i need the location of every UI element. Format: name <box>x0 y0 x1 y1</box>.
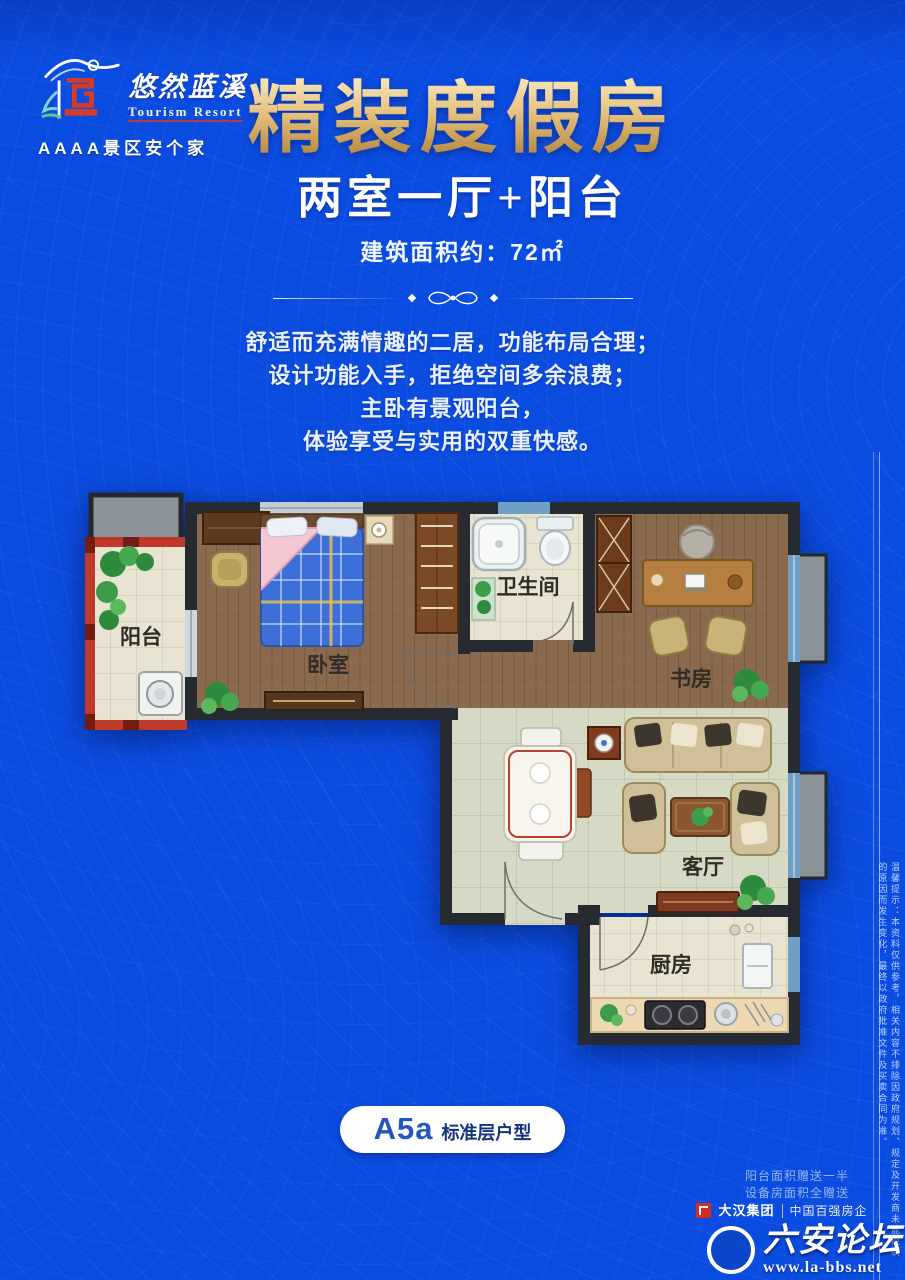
footer-note: 阳台面积赠送一半 <box>717 1168 877 1185</box>
room-label-bedroom: 卧室 <box>307 653 349 677</box>
desk <box>643 560 753 606</box>
description: 舒适而充满情趣的二居，功能布局合理； 设计功能入手，拒绝空间多余浪费； 主卧有景… <box>0 326 905 458</box>
page-title: 精装度假房 <box>150 78 775 160</box>
description-line: 舒适而充满情趣的二居，功能布局合理； <box>0 326 905 359</box>
bed <box>261 514 363 646</box>
room-label-kitchen: 厨房 <box>650 953 692 977</box>
armchair <box>211 552 248 587</box>
unit-badge: A5a 标准层户型 <box>340 1106 566 1153</box>
coffee-table <box>671 798 729 836</box>
ornament-divider <box>273 288 633 308</box>
unit-badge-label: 标准层户型 <box>441 1124 531 1142</box>
bath-shelf-plant <box>472 578 495 620</box>
poster: 悠然蓝溪 Tourism Resort AAAA景区安个家 精装度假房 两室一厅… <box>0 0 905 1280</box>
description-line: 体验享受与实用的双重快感。 <box>0 425 905 458</box>
toilet <box>537 517 573 565</box>
room-label-balcony: 阳台 <box>120 625 162 649</box>
room-label-study: 书房 <box>670 667 712 691</box>
wardrobe <box>416 513 458 633</box>
desk-chair <box>680 525 714 559</box>
tv-dresser-bedroom <box>265 692 363 710</box>
watermark-site-url: www.la-bbs.net <box>763 1260 903 1276</box>
headline-block: 精装度假房 两室一厅+阳台 建筑面积约：72㎡ <box>150 78 775 264</box>
developer-name: 大汉集团 <box>718 1204 774 1217</box>
watermark-site-name: 六安论坛 <box>763 1225 903 1258</box>
description-line: 主卧有景观阳台， <box>0 392 905 425</box>
room-label-living: 客厅 <box>682 855 724 879</box>
nightstand <box>366 516 393 544</box>
x-cabinet <box>597 516 631 612</box>
bathtub <box>473 518 525 570</box>
edge-line <box>873 452 874 1280</box>
developer-tag: 中国百强房企 <box>790 1205 868 1217</box>
footer-note: 设备房面积全赠送 <box>717 1185 877 1202</box>
flourish-icon <box>421 288 485 308</box>
kitchen-counter <box>591 998 788 1032</box>
page-subtitle: 两室一厅+阳台 <box>150 176 775 221</box>
description-line: 设计功能入手，拒绝空间多余浪费； <box>0 359 905 392</box>
area-text: 建筑面积约：72㎡ <box>150 241 775 264</box>
room-label-bathroom: 卫生间 <box>497 575 560 599</box>
vertical-disclaimer: 温馨提示：本资料仅供参考，相关内容不排除因政府规划、规定及开发商未能控制的原因而… <box>876 862 901 1264</box>
washing-machine <box>139 672 182 715</box>
developer-logo-icon <box>696 1203 711 1218</box>
side-table <box>588 727 620 759</box>
floorplan: 阳台 卧室 卫生间 书房 客厅 厨房 <box>85 492 845 1092</box>
developer-row: 大汉集团 中国百强房企 <box>687 1203 877 1218</box>
divider <box>782 1204 783 1218</box>
footer-notes: 阳台面积赠送一半 设备房面积全赠送 <box>717 1168 877 1202</box>
dresser <box>203 512 269 544</box>
watermark: 六安论坛 www.la-bbs.net <box>705 1224 903 1276</box>
pavilion-logo-icon <box>38 48 124 130</box>
tv-cabinet <box>657 892 739 912</box>
globe-icon <box>705 1224 757 1276</box>
unit-badge-code: A5a <box>374 1113 434 1144</box>
